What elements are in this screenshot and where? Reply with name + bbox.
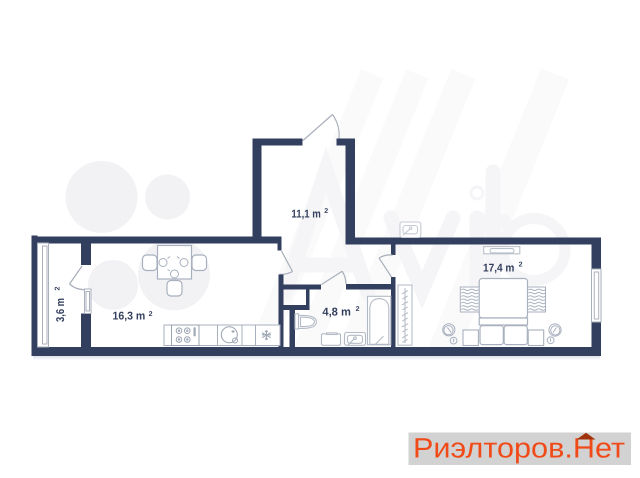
svg-text:17,4 m: 17,4 m <box>483 262 514 274</box>
svg-text:3,6 m: 3,6 m <box>55 298 67 322</box>
svg-text:4,8 m: 4,8 m <box>322 307 351 319</box>
svg-text:2: 2 <box>324 208 328 215</box>
svg-text:2: 2 <box>356 306 360 313</box>
svg-text:Риэлторов.Нет: Риэлторов.Нет <box>413 433 625 464</box>
svg-text:2: 2 <box>149 311 153 318</box>
svg-text:11,1 m: 11,1 m <box>291 208 321 220</box>
svg-text:2: 2 <box>519 262 523 269</box>
svg-text:16,3 m: 16,3 m <box>113 311 146 323</box>
svg-text:2: 2 <box>55 287 62 291</box>
